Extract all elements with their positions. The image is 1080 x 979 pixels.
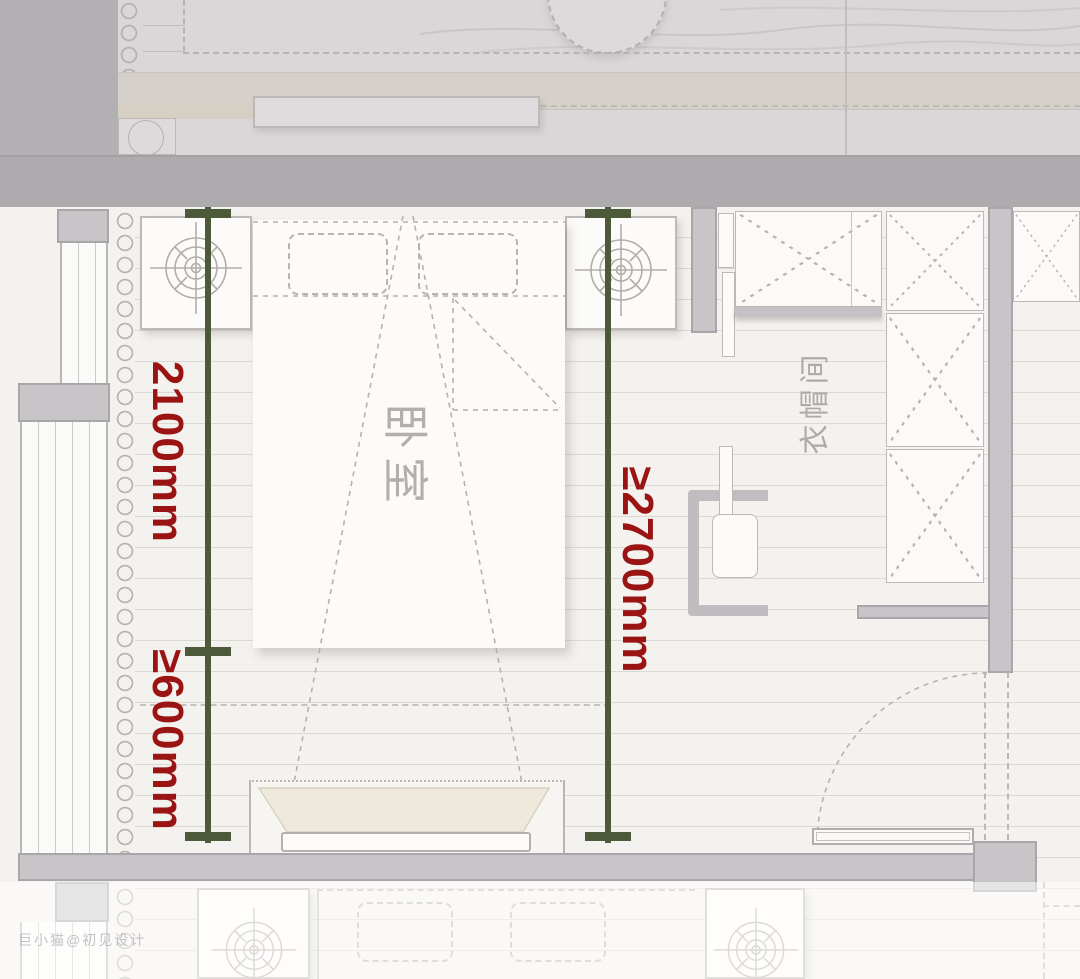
door-swing-arc <box>810 665 1020 855</box>
dressing-stool <box>712 514 758 578</box>
wardrobe-cell <box>886 211 984 311</box>
dimension-label-600: ≥600mm <box>142 649 192 831</box>
wardrobe-cell <box>1013 211 1080 302</box>
wardrobe-cell <box>886 449 984 583</box>
wall-pier <box>18 383 110 422</box>
dimension-label-2100: 2100mm <box>142 361 192 543</box>
closet-wall-stub <box>691 207 717 333</box>
window-left-upper <box>60 243 108 383</box>
wardrobe-divider <box>851 212 852 306</box>
console-shelf <box>812 828 974 845</box>
sliding-door-panel <box>722 272 735 357</box>
wardrobe-shelf-edge <box>735 307 882 317</box>
curtain-icon <box>112 210 138 855</box>
table-lamp-icon <box>146 218 246 318</box>
wardrobe-cell <box>886 313 984 447</box>
top-left-wall-block <box>0 0 118 155</box>
window-left-lower <box>20 422 108 853</box>
closet-label: 衣帽间 <box>790 350 834 455</box>
wall-bottom <box>18 853 975 881</box>
dimension-tick <box>185 832 231 841</box>
wall-right <box>988 207 1013 673</box>
dimension-tick <box>585 832 631 841</box>
tv-screen <box>281 832 531 852</box>
bed-linework <box>240 210 580 860</box>
closet-lower-wall <box>857 605 990 619</box>
watermark: 巨小猫@初见设计 <box>18 930 146 950</box>
separator-wall <box>0 155 1080 207</box>
nightstand-right <box>565 216 677 330</box>
dimension-line-right <box>605 207 611 843</box>
dimension-tick <box>585 209 631 218</box>
sliding-door-panel <box>718 213 734 268</box>
dimension-label-2700: ≥2700mm <box>612 466 662 673</box>
bedroom-label: 卧室 <box>375 403 441 511</box>
floor-plan-canvas: 卧室 衣帽间 <box>0 0 1080 979</box>
nightstand-left <box>140 216 252 330</box>
wall-pier <box>57 209 109 243</box>
table-lamp-icon <box>571 220 671 320</box>
top-fade-overlay <box>0 0 1080 155</box>
bottom-fade-overlay <box>0 882 1080 979</box>
dimension-tick <box>185 209 231 218</box>
wardrobe-cell <box>735 211 882 307</box>
dimension-line-left <box>205 207 211 843</box>
